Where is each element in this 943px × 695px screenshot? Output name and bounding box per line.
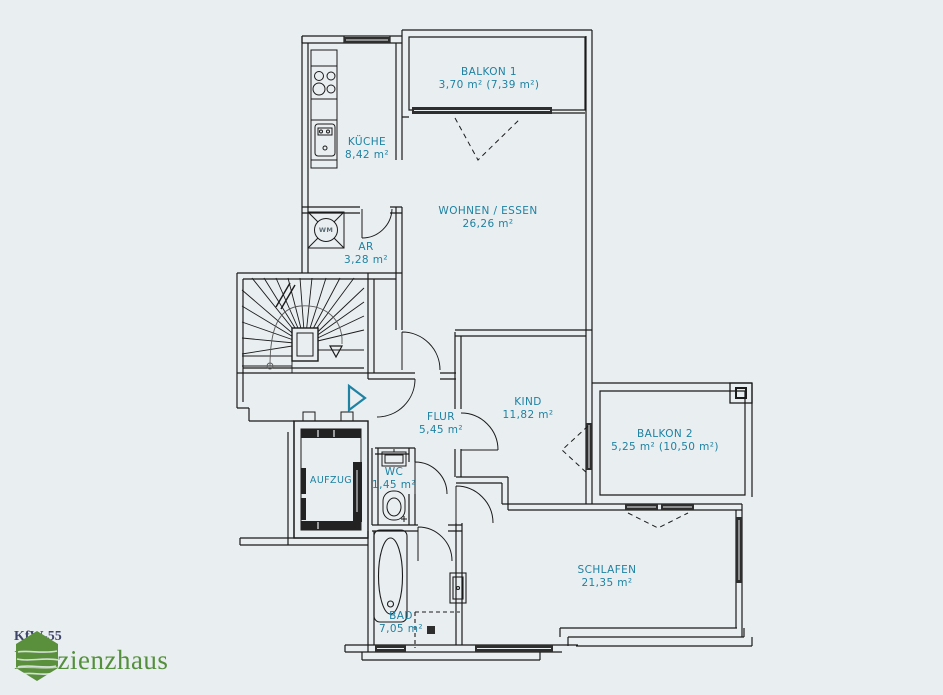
room-label-bad: BAD7,05 m² bbox=[379, 610, 423, 636]
room-label-aufzug: AUFZUG bbox=[310, 474, 352, 487]
room-label-balkon1: BALKON 13,70 m² (7,39 m²) bbox=[439, 66, 540, 92]
pillar bbox=[730, 383, 752, 403]
entrance-arrow-icon bbox=[349, 386, 365, 410]
room-label-ar: AR3,28 m² bbox=[344, 241, 388, 267]
room-label-balkon2: BALKON 25,25 m² (10,50 m²) bbox=[611, 428, 719, 454]
kitchen-counter bbox=[311, 50, 337, 168]
stove-icon bbox=[315, 72, 324, 81]
room-label-flur: FLUR5,45 m² bbox=[419, 411, 463, 437]
kfw-house-icon bbox=[14, 630, 60, 682]
staircase bbox=[242, 278, 364, 373]
room-label-wc: WC1,45 m² bbox=[372, 466, 416, 492]
room-label-kind: KIND11,82 m² bbox=[502, 396, 553, 422]
room-label-kueche: KÜCHE8,42 m² bbox=[345, 136, 389, 162]
washing-machine-label: WM bbox=[319, 226, 333, 234]
room-label-wohnen: WOHNEN / ESSEN26,26 m² bbox=[438, 205, 537, 231]
kfw-logo: KfW-55 Effizienzhaus bbox=[14, 630, 168, 674]
windows bbox=[344, 37, 742, 652]
shower-drain-icon bbox=[427, 626, 435, 634]
opening-marks bbox=[455, 118, 688, 528]
floor-plan-drawing bbox=[0, 0, 943, 695]
room-label-schlafen: SCHLAFEN21,35 m² bbox=[578, 564, 637, 590]
floor-plan: BALKON 13,70 m² (7,39 m²) KÜCHE8,42 m² W… bbox=[0, 0, 943, 695]
